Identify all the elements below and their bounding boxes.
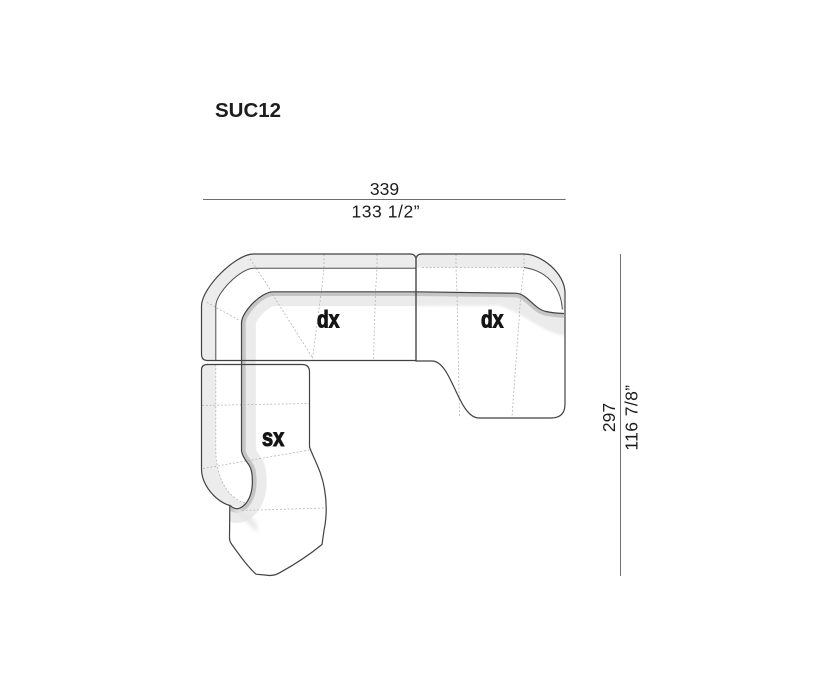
svg-text:339: 339 xyxy=(370,179,399,199)
svg-text:sx: sx xyxy=(262,424,285,452)
svg-text:297: 297 xyxy=(599,403,619,432)
svg-text:133 1/2”: 133 1/2” xyxy=(351,202,420,222)
svg-text:SUC12: SUC12 xyxy=(215,99,281,122)
svg-text:dx: dx xyxy=(481,305,503,333)
svg-text:116 7/8”: 116 7/8” xyxy=(622,385,642,451)
svg-text:dx: dx xyxy=(317,306,339,334)
